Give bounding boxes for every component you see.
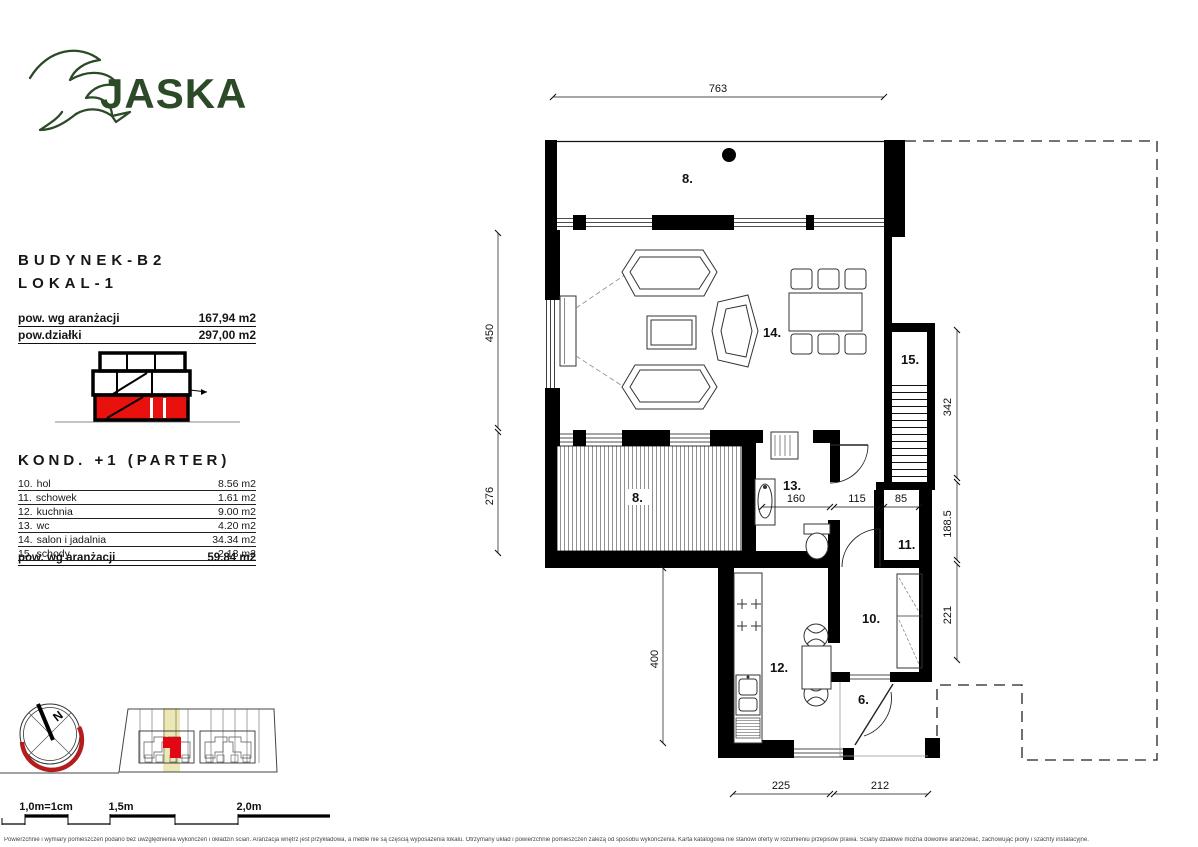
- room-area: 34.34 m2: [212, 534, 256, 546]
- dim-right-mid: 188.5: [942, 510, 954, 538]
- room-row: 13.wc 4.20 m2: [18, 519, 256, 533]
- room-name: salon i jadalnia: [37, 534, 106, 546]
- chair: [845, 334, 866, 354]
- kitchen-table: [802, 646, 831, 689]
- plot-boundary-dashed: [905, 141, 1157, 760]
- room-no: 11.: [18, 492, 32, 504]
- room-row: 10.hol 8.56 m2: [18, 477, 256, 491]
- dim-right-upper: 342: [942, 398, 954, 416]
- hall-wardrobe: [897, 574, 922, 668]
- dim-top: 763: [709, 83, 727, 95]
- logo: JASKA: [14, 22, 274, 132]
- tv-cabinet: [560, 296, 576, 366]
- scale-mid-label: 1,5m: [108, 801, 133, 813]
- room-label-terrace-top: 8.: [682, 171, 693, 186]
- dishwasher: [736, 718, 760, 738]
- room-label-storage: 11.: [898, 537, 915, 552]
- room-area: 4.20 m2: [218, 520, 256, 532]
- stair-treads: [892, 384, 927, 480]
- total-value: 59.84 m2: [207, 552, 256, 564]
- room-label-hall: 10.: [862, 611, 880, 626]
- room-name: wc: [37, 520, 50, 532]
- scale-end-label: 2,0m: [236, 801, 261, 813]
- room-no: 13.: [18, 520, 33, 532]
- dim-left-upper: 450: [484, 324, 496, 342]
- summary-label: pow.działki: [18, 328, 82, 342]
- summary-value: 297,00 m2: [199, 328, 256, 342]
- scale-bar: 1,0m=1cm 1,5m 2,0m: [2, 801, 330, 825]
- brand-name: JASKA: [100, 70, 247, 118]
- dim-right-lower: 221: [942, 606, 954, 624]
- room-name: hol: [37, 478, 51, 490]
- room-no: 14.: [18, 534, 33, 546]
- chair: [791, 334, 812, 354]
- armchair: [712, 295, 758, 367]
- room-name: schowek: [36, 492, 77, 504]
- chair: [804, 624, 828, 648]
- dim-left-lower: 276: [484, 487, 496, 505]
- floorplan-brochure-page: { "brand": {"name": "JASKA", "color": "#…: [0, 0, 1198, 847]
- chair: [845, 269, 866, 289]
- unit-label: LOKAL-1: [18, 273, 166, 296]
- total-label: pow. wg aranżacji: [18, 552, 115, 564]
- kitchen-counter: [734, 573, 762, 743]
- total-area-row: pow. wg aranżacji 59.84 m2: [18, 551, 256, 566]
- summary-row: pow.działki 297,00 m2: [18, 327, 256, 344]
- building-title: BUDYNEK-B2 LOKAL-1: [18, 250, 166, 295]
- dim-kitchen-left: 400: [649, 650, 661, 668]
- section-drawing: [55, 350, 240, 438]
- room-name: kuchnia: [37, 506, 73, 518]
- dim-bottom-left: 225: [772, 780, 790, 792]
- chair: [818, 269, 839, 289]
- coffee-table: [647, 316, 696, 349]
- chair: [791, 269, 812, 289]
- building-label: BUDYNEK-B2: [18, 250, 166, 273]
- chair: [818, 334, 839, 354]
- room-area: 9.00 m2: [218, 506, 256, 518]
- living-room-furniture: [560, 250, 866, 409]
- room-row: 14.salon i jadalnia 34.34 m2: [18, 533, 256, 547]
- floor-plan: 8. 14. 15. 8. 13. 11. 10. 12. 6. 763 450…: [470, 80, 1198, 800]
- room-no: 12.: [18, 506, 33, 518]
- floor-title: KOND. +1 (PARTER): [18, 452, 230, 469]
- room-list: 10.hol 8.56 m2 11.schowek 1.61 m2 12.kuc…: [18, 477, 256, 561]
- compass-icon: N: [20, 704, 82, 770]
- room-area: 1.61 m2: [218, 492, 256, 504]
- dining-table: [789, 293, 862, 331]
- room-row: 12.kuchnia 9.00 m2: [18, 505, 256, 519]
- room-row: 11.schowek 1.61 m2: [18, 491, 256, 505]
- dim-storage-width: 85: [895, 493, 907, 505]
- scale-note: 1,0m=1cm: [19, 801, 73, 813]
- room-label-porch: 6.: [858, 692, 869, 707]
- summary-row: pow. wg aranżacji 167,94 m2: [18, 310, 256, 327]
- room-area: 8.56 m2: [218, 478, 256, 490]
- dim-wc-width: 160: [787, 493, 805, 505]
- site-plan-block: N: [0, 688, 340, 838]
- north-label: N: [50, 708, 65, 724]
- summary-label: pow. wg aranżacji: [18, 311, 120, 325]
- dim-corridor-width: 115: [848, 493, 866, 505]
- room-label-living: 14.: [763, 325, 781, 340]
- room-label-kitchen: 12.: [770, 660, 788, 675]
- room-no: 10.: [18, 478, 33, 490]
- kitchen-fixtures: [734, 573, 831, 743]
- column-dot: [722, 148, 736, 162]
- room-label-wc: 13.: [783, 478, 801, 493]
- room-label-stairs: 15.: [901, 352, 919, 367]
- dim-bottom-right: 212: [871, 780, 889, 792]
- disclaimer-text: Powierzchnie i wymiary pomieszczeń podan…: [4, 837, 1196, 843]
- room-label-terrace-low: 8.: [632, 490, 643, 505]
- area-summary: pow. wg aranżacji 167,94 m2 pow.działki …: [18, 310, 256, 344]
- summary-value: 167,94 m2: [199, 311, 256, 325]
